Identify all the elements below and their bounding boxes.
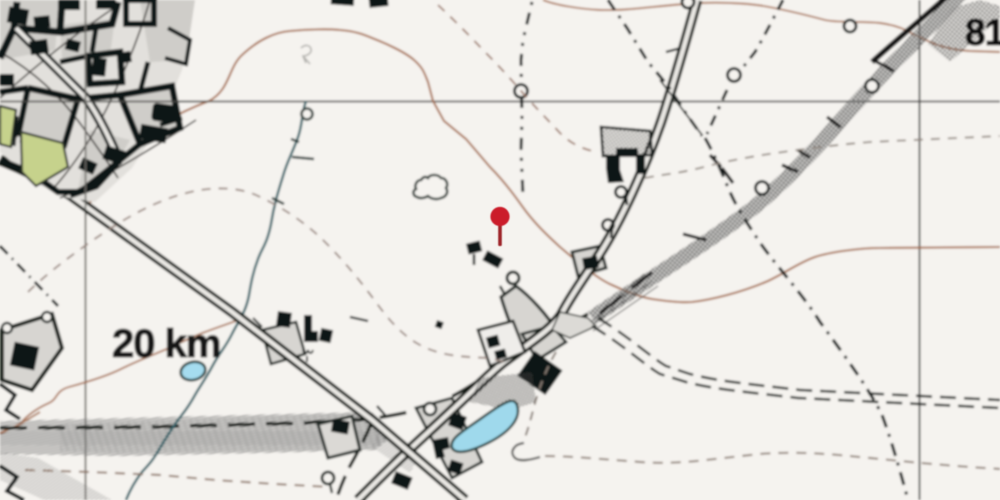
svg-text:81: 81: [965, 12, 1000, 53]
svg-text:20 km: 20 km: [112, 322, 220, 366]
